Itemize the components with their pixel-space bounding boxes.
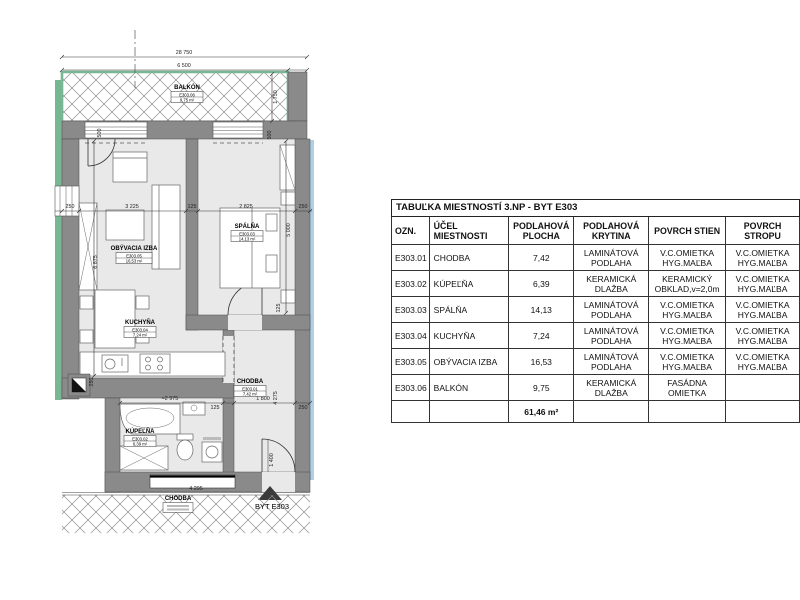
dim-250-bottom: 250 <box>299 405 308 411</box>
dim-250-right: 250 <box>299 204 308 210</box>
dim-125-bottom: 125 <box>211 405 220 411</box>
table-cell <box>726 401 800 423</box>
table-title-row: TABUĽKA MIESTNOSTÍ 3.NP - BYT E303 <box>392 200 800 217</box>
code-kitchen: E303.04 <box>132 327 148 332</box>
table-cell <box>429 401 508 423</box>
dim-bedroom-depth: 5 000 <box>286 223 292 237</box>
label-corridor: CHODBA <box>165 496 192 502</box>
page: { "plan": { "apartment_label": "BYT E303… <box>0 0 800 600</box>
table-cell: LAMINÁTOVÁ PODLAHA <box>574 349 649 375</box>
table-cell: LAMINÁTOVÁ PODLAHA <box>574 245 649 271</box>
table-cell: 7,42 <box>509 245 574 271</box>
table-cell: SPÁLŇA <box>429 297 508 323</box>
area-bath: 6,39 m² <box>133 442 148 447</box>
table-cell: V.C.OMIETKA HYG.MAĽBA <box>649 245 726 271</box>
dim-bath-width: ≈2 975 <box>162 396 178 402</box>
code-hall: E303.01 <box>242 386 258 391</box>
dim-corridor: 4 295 <box>189 486 203 492</box>
label-bedroom: SPÁLŇA <box>235 222 260 230</box>
table-cell: 6,39 <box>509 271 574 297</box>
code-bedroom: E303.03 <box>239 231 255 236</box>
table-cell: KERAMICKÝ OBKLAD,v=2,0m <box>649 271 726 297</box>
table-cell: E303.01 <box>392 245 430 271</box>
dim-living-width: 3 225 <box>125 204 139 210</box>
table-cell: V.C.OMIETKA HYG.MAĽBA <box>726 245 800 271</box>
area-bedroom: 14,13 m² <box>239 237 256 242</box>
area-hall: 7,42 m² <box>243 392 258 397</box>
table-cell: V.C.OMIETKA HYG.MAĽBA <box>649 297 726 323</box>
code-bath: E303.02 <box>132 436 148 441</box>
table-row: E303.02 KÚPEĽŇA 6,39 KERAMICKÁ DLAŽBA KE… <box>392 271 800 297</box>
area-kitchen: 7,24 m² <box>133 333 148 338</box>
table-cell: V.C.OMIETKA HYG.MAĽBA <box>726 271 800 297</box>
label-living: OBÝVACIA IZBA <box>111 245 158 252</box>
table-cell: KUCHYŇA <box>429 323 508 349</box>
table-row: E303.01 CHODBA 7,42 LAMINÁTOVÁ PODLAHA V… <box>392 245 800 271</box>
dim-hall-depth: 4 275 <box>273 391 279 405</box>
table-cell: V.C.OMIETKA HYG.MAĽBA <box>726 349 800 375</box>
dim-250-left: 250 <box>66 204 75 210</box>
dim-wall-500-right: 500 <box>267 131 273 140</box>
label-hall: CHODBA <box>237 379 264 385</box>
table-cell: 14,13 <box>509 297 574 323</box>
room-table: TABUĽKA MIESTNOSTÍ 3.NP - BYT E303 OZN. … <box>391 199 800 423</box>
table-total-row: 61,46 m² <box>392 401 800 423</box>
header-ozn: OZN. <box>392 217 430 245</box>
table-cell: 9,75 <box>509 375 574 401</box>
table-cell: OBÝVACIA IZBA <box>429 349 508 375</box>
table-cell: E303.05 <box>392 349 430 375</box>
dim-entry-width: 1 400 <box>269 453 275 467</box>
dim-living-depth: 6 875 <box>93 255 99 269</box>
code-living: E303.05 <box>126 253 142 258</box>
table-cell: KERAMICKÁ DLAŽBA <box>574 375 649 401</box>
code-balcony: E303.06 <box>179 92 195 97</box>
dim-wall-500-left: 500 <box>97 129 103 138</box>
table-header-row: OZN. ÚČEL MIESTNOSTI PODLAHOVÁ PLOCHA PO… <box>392 217 800 245</box>
header-stien: POVRCH STIEN <box>649 217 726 245</box>
dim-hall-width: 1 800 <box>256 396 270 402</box>
table-row: E303.05 OBÝVACIA IZBA 16,53 LAMINÁTOVÁ P… <box>392 349 800 375</box>
dim-125-mid: 125 <box>188 204 197 210</box>
label-kitchen: KUCHYŇA <box>125 318 156 326</box>
table-cell: E303.04 <box>392 323 430 349</box>
dim-250-kitchen: 250 <box>89 378 95 387</box>
table-cell: CHODBA <box>429 245 508 271</box>
table-row: E303.04 KUCHYŇA 7,24 LAMINÁTOVÁ PODLAHA … <box>392 323 800 349</box>
table-cell: LAMINÁTOVÁ PODLAHA <box>574 323 649 349</box>
area-living: 16,53 m² <box>126 259 143 264</box>
header-stropu: POVRCH STROPU <box>726 217 800 245</box>
dim-balcony-width: 6 500 <box>177 63 191 69</box>
table-cell: 16,53 <box>509 349 574 375</box>
table-cell: KÚPEĽŇA <box>429 271 508 297</box>
table-cell: E303.03 <box>392 297 430 323</box>
header-plocha: PODLAHOVÁ PLOCHA <box>509 217 574 245</box>
floor-plan: 28 750 6 500 1 750 500 500 250 3 225 125… <box>0 0 400 600</box>
header-ucel: ÚČEL MIESTNOSTI <box>429 217 508 245</box>
dim-125-right: 125 <box>276 304 282 313</box>
table-cell <box>649 401 726 423</box>
corner-pillar <box>68 374 90 396</box>
table-cell <box>574 401 649 423</box>
table-cell <box>392 401 430 423</box>
label-bath: KÚPEĽŇA <box>125 427 155 435</box>
table-cell: FASÁDNA OMIETKA <box>649 375 726 401</box>
label-balcony: BALKÓN <box>174 83 200 91</box>
table-cell: KERAMICKÁ DLAŽBA <box>574 271 649 297</box>
table-cell <box>726 375 800 401</box>
table-title: TABUĽKA MIESTNOSTÍ 3.NP - BYT E303 <box>392 200 800 217</box>
table-cell: LAMINÁTOVÁ PODLAHA <box>574 297 649 323</box>
table-row: E303.03 SPÁLŇA 14,13 LAMINÁTOVÁ PODLAHA … <box>392 297 800 323</box>
header-krytina: PODLAHOVÁ KRYTINA <box>574 217 649 245</box>
table-cell: 7,24 <box>509 323 574 349</box>
table-cell: E303.02 <box>392 271 430 297</box>
apartment-label: BYT E303 <box>255 502 289 511</box>
area-balcony: 9,75 m² <box>180 98 195 103</box>
table-cell: V.C.OMIETKA HYG.MAĽBA <box>726 323 800 349</box>
table-cell: BALKÓN <box>429 375 508 401</box>
table-cell: V.C.OMIETKA HYG.MAĽBA <box>726 297 800 323</box>
table-cell: E303.06 <box>392 375 430 401</box>
total-area-cell: 61,46 m² <box>509 401 574 423</box>
dim-balcony-depth: 1 750 <box>273 90 279 104</box>
table-row: E303.06 BALKÓN 9,75 KERAMICKÁ DLAŽBA FAS… <box>392 375 800 401</box>
table-cell: V.C.OMIETKA HYG.MAĽBA <box>649 349 726 375</box>
dim-total-width: 28 750 <box>176 50 193 56</box>
table-cell: V.C.OMIETKA HYG.MAĽBA <box>649 323 726 349</box>
dim-bedroom-width: 2 825 <box>239 204 253 210</box>
